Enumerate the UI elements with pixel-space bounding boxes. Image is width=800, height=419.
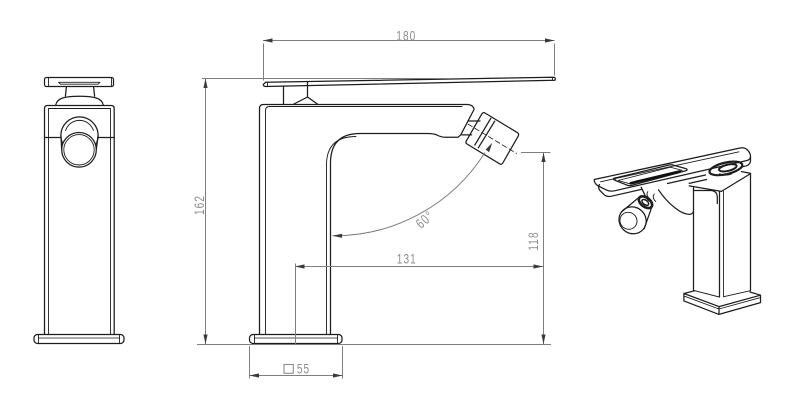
- svg-text:131: 131: [397, 251, 417, 267]
- svg-text:180: 180: [396, 28, 416, 44]
- svg-text:162: 162: [191, 195, 207, 215]
- svg-text:118: 118: [525, 231, 541, 250]
- svg-text:55: 55: [297, 361, 310, 377]
- svg-text:60°: 60°: [413, 207, 437, 231]
